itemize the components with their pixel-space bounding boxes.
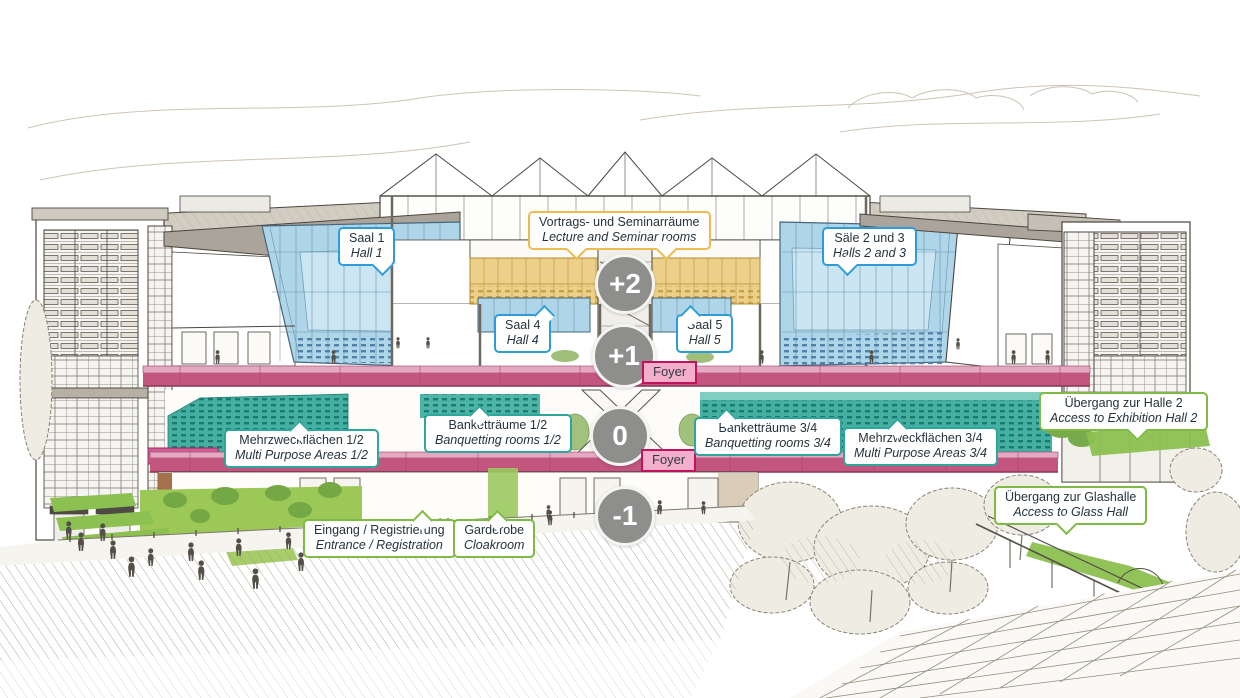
label-de: Saal 4 [505,318,540,333]
callout-multi-purpose-34: Mehrzweckflächen 3/4 Multi Purpose Areas… [843,427,998,466]
callout-hall-5: Saal 5 Hall 5 [676,314,733,353]
label-de: Vortrags- und Seminarräume [539,215,700,230]
label-de: Übergang zur Glashalle [1005,490,1136,505]
callout-banquet-rooms-34: Banketträume 3/4 Banquetting rooms 3/4 [694,417,842,456]
callout-access-glass-hall: Übergang zur Glashalle Access to Glass H… [994,486,1147,525]
label-en: Hall 4 [505,333,540,348]
congress-centre-cross-section: +2 +1 0 -1 Foyer Foyer Vortrags- und Sem… [0,0,1240,698]
label-en: Multi Purpose Areas 1/2 [235,448,368,463]
callout-halls-2-3: Säle 2 und 3 Halls 2 and 3 [822,227,917,266]
label-de: Banketträume 1/2 [435,418,561,433]
label-en: Cloakroom [464,538,524,553]
callout-entrance-registration: Eingang / Registrierung Entrance / Regis… [303,519,456,558]
callout-access-exhibition-hall-2: Übergang zur Halle 2 Access to Exhibitio… [1039,392,1208,431]
level-badge-plus2: +2 [595,254,655,314]
label-en: Multi Purpose Areas 3/4 [854,446,987,461]
callout-hall-4: Saal 4 Hall 4 [494,314,551,353]
label-de: Säle 2 und 3 [833,231,906,246]
callout-seminar-rooms: Vortrags- und Seminarräume Lecture and S… [528,211,711,250]
callout-hall-1: Saal 1 Hall 1 [338,227,395,266]
callout-banquet-rooms-12: Banketträume 1/2 Banquetting rooms 1/2 [424,414,572,453]
foyer-label-lower: Foyer [641,449,696,472]
callout-multi-purpose-12: Mehrzweckflächen 1/2 Multi Purpose Areas… [224,429,379,468]
callout-cloakroom: Garderobe Cloakroom [453,519,535,558]
label-de: Übergang zur Halle 2 [1050,396,1197,411]
label-en: Banquetting rooms 3/4 [705,436,831,451]
label-en: Lecture and Seminar rooms [539,230,700,245]
label-en: Entrance / Registration [314,538,445,553]
label-en: Hall 5 [687,333,722,348]
level-badge-minus1: -1 [595,486,655,546]
label-de: Mehrzweckflächen 3/4 [854,431,987,446]
label-de: Saal 1 [349,231,384,246]
label-en: Access to Exhibition Hall 2 [1050,411,1197,426]
foyer-label-upper: Foyer [642,361,697,384]
label-en: Banquetting rooms 1/2 [435,433,561,448]
